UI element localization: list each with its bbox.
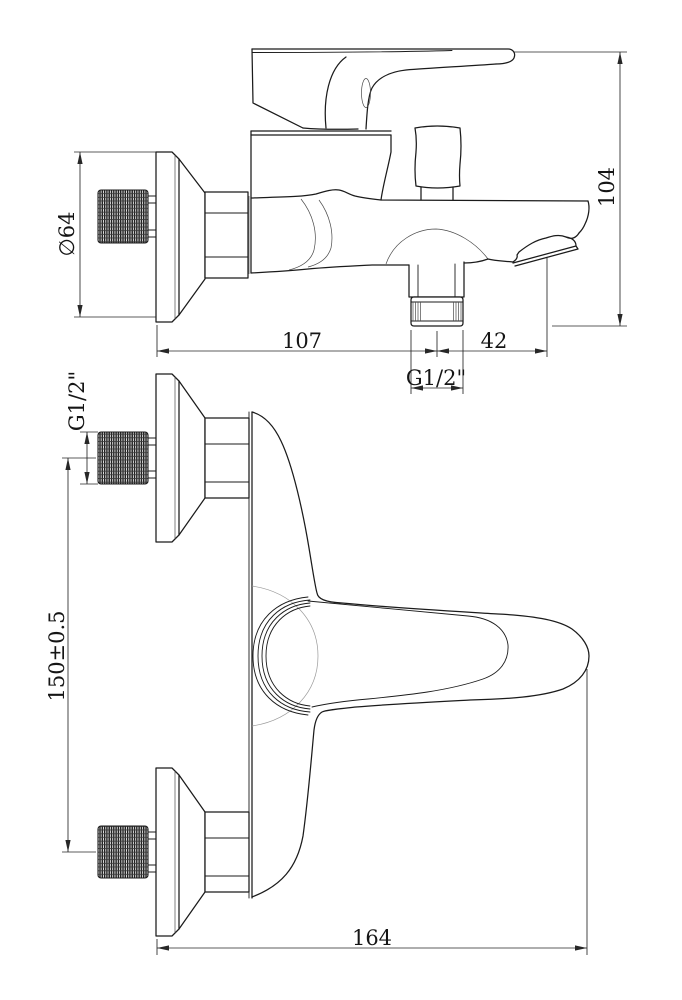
side-spout <box>513 233 579 266</box>
plan-lower-escutcheon <box>156 768 179 936</box>
side-shower-outlet <box>409 262 464 326</box>
side-handle-lever <box>252 49 515 129</box>
side-view <box>98 49 589 326</box>
dim-label-outlet-thread: G1/2" <box>406 366 466 390</box>
dim-label-diameter: ∅64 <box>55 211 79 256</box>
plan-body-outline <box>252 412 589 897</box>
plan-handle-base-collar <box>253 597 310 715</box>
plan-view <box>98 374 589 936</box>
side-pipe-connector <box>148 196 156 237</box>
plan-handle-top-surface <box>308 601 508 707</box>
side-escutcheon-plate <box>156 152 179 322</box>
technical-drawing-sheet: ∅64 107 42 G1/2" 104 G1/2" 150±0.5 164 <box>0 0 682 1000</box>
plan-lower-threaded-pipe <box>98 826 148 878</box>
dim-label-inlet-thread: G1/2" <box>65 371 89 431</box>
faucet-technical-drawing: ∅64 107 42 G1/2" 104 G1/2" 150±0.5 164 <box>0 0 682 1000</box>
side-outlet-thread-collar <box>411 297 463 326</box>
side-diverter-knob <box>415 126 461 200</box>
side-handle-pivot <box>362 79 371 108</box>
dim-label-spout-offset: 42 <box>481 329 508 353</box>
side-body-dome <box>386 229 488 264</box>
plan-lower-hex-nut <box>205 812 249 892</box>
plan-upper-escutcheon <box>156 374 179 542</box>
side-escutcheon-cone <box>179 159 205 315</box>
dim-label-overall-length: 164 <box>352 926 392 950</box>
dim-label-inlet-spacing: 150±0.5 <box>45 610 69 701</box>
plan-upper-threaded-pipe <box>98 432 148 484</box>
dimensions: ∅64 107 42 G1/2" 104 G1/2" 150±0.5 164 <box>45 52 627 955</box>
dim-label-overall-height: 104 <box>595 167 619 207</box>
side-threaded-pipe <box>98 190 148 243</box>
plan-upper-hex-nut <box>205 418 249 498</box>
dim-label-body-depth: 107 <box>282 329 322 353</box>
side-hex-nut <box>205 192 249 278</box>
plan-lower-inlet <box>98 768 249 936</box>
plan-body-and-handle <box>249 412 589 898</box>
plan-upper-inlet <box>98 374 249 542</box>
